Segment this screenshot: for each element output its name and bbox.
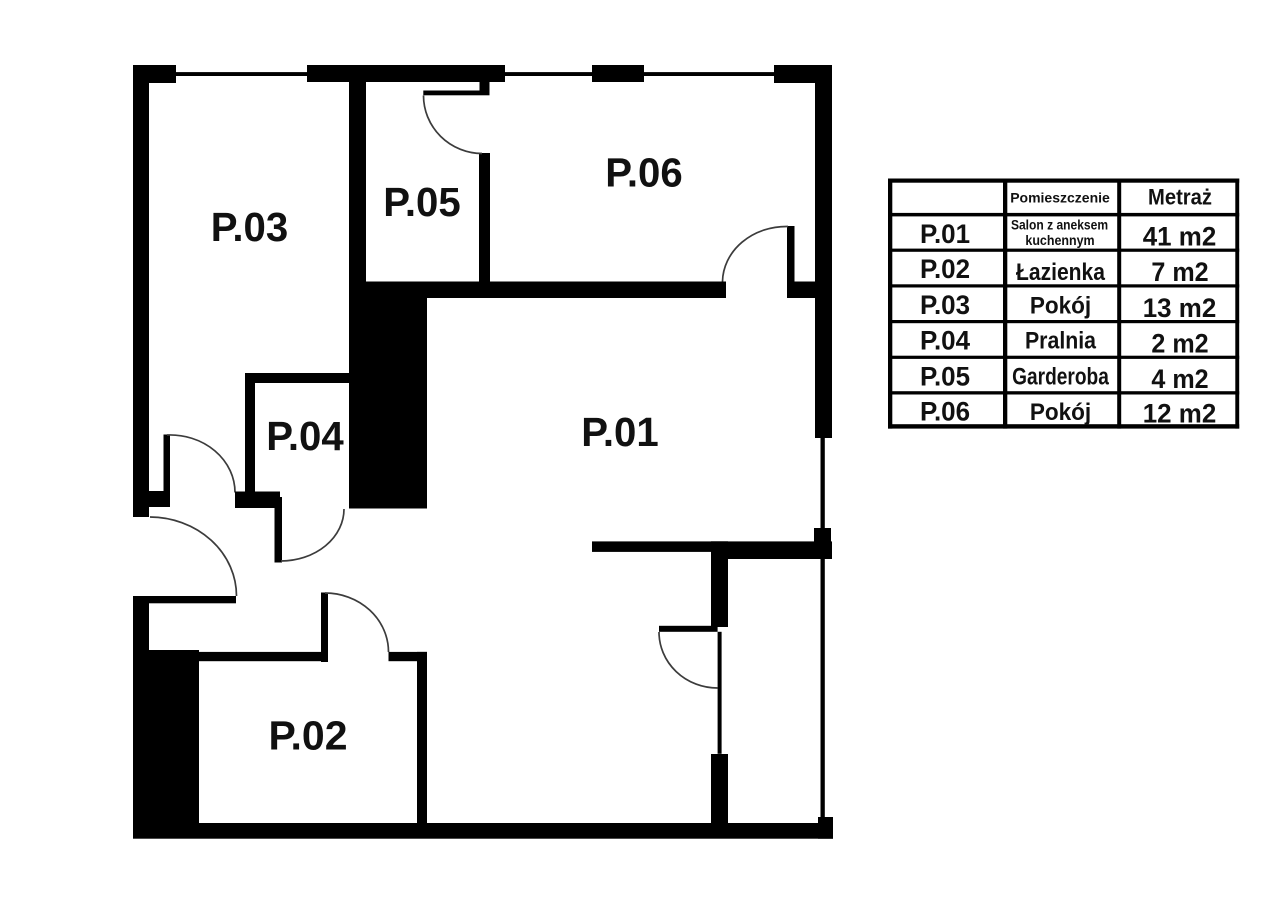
svg-text:Metraż: Metraż — [1148, 186, 1212, 210]
svg-text:7 m2: 7 m2 — [1151, 256, 1208, 287]
svg-text:Pomieszczenie: Pomieszczenie — [1010, 189, 1110, 205]
svg-text:P.05: P.05 — [383, 179, 460, 225]
svg-text:41 m2: 41 m2 — [1143, 221, 1216, 252]
svg-text:P.02: P.02 — [920, 254, 970, 284]
svg-text:P.06: P.06 — [920, 396, 970, 426]
svg-text:Salon z aneksem: Salon z aneksem — [1011, 216, 1108, 232]
svg-text:4 m2: 4 m2 — [1151, 363, 1208, 394]
svg-text:12 m2: 12 m2 — [1143, 398, 1216, 429]
svg-text:P.01: P.01 — [920, 219, 970, 249]
svg-text:Pralnia: Pralnia — [1025, 326, 1096, 354]
svg-text:P.04: P.04 — [266, 413, 344, 459]
svg-text:kuchennym: kuchennym — [1025, 232, 1094, 248]
svg-text:P.04: P.04 — [920, 325, 970, 355]
svg-text:Pokój: Pokój — [1030, 292, 1091, 319]
svg-text:Pokój: Pokój — [1030, 398, 1091, 425]
svg-text:P.03: P.03 — [211, 204, 288, 250]
svg-text:P.03: P.03 — [920, 290, 970, 320]
svg-text:2 m2: 2 m2 — [1151, 328, 1208, 359]
svg-text:P.02: P.02 — [268, 713, 347, 759]
svg-text:P.01: P.01 — [581, 409, 658, 455]
svg-text:13 m2: 13 m2 — [1143, 292, 1216, 323]
svg-text:P.06: P.06 — [605, 149, 682, 195]
svg-text:Garderoba: Garderoba — [1012, 362, 1109, 390]
svg-text:P.05: P.05 — [920, 361, 970, 391]
svg-text:Łazienka: Łazienka — [1016, 257, 1105, 285]
